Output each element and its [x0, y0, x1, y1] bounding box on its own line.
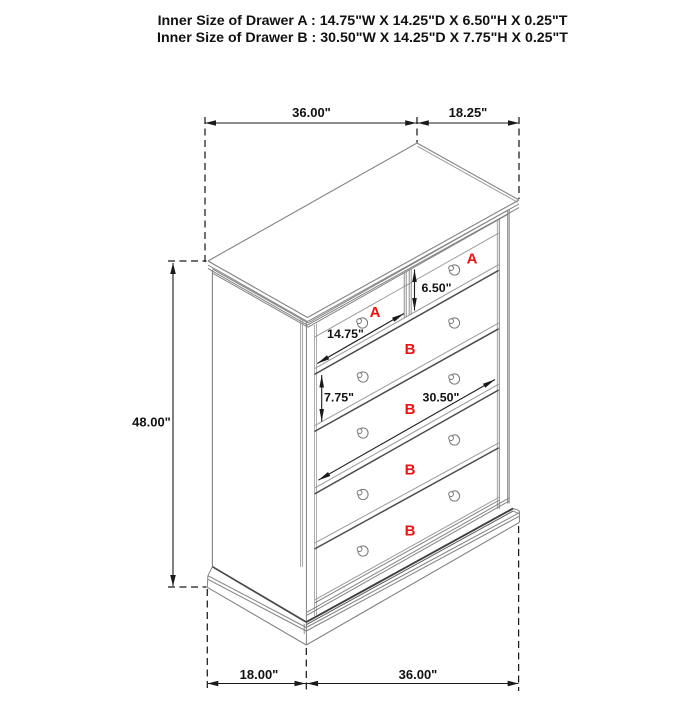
svg-text:48.00": 48.00"	[132, 415, 171, 430]
svg-text:6.50": 6.50"	[422, 281, 452, 295]
svg-text:Inner Size of Drawer B : 30.50: Inner Size of Drawer B : 30.50"W X 14.25…	[157, 30, 568, 46]
svg-text:A: A	[467, 251, 478, 268]
svg-text:Inner Size of Drawer A : 14.75: Inner Size of Drawer A : 14.75"W X 14.25…	[158, 13, 568, 29]
svg-text:B: B	[405, 401, 416, 418]
svg-text:7.75": 7.75"	[324, 391, 354, 405]
svg-text:B: B	[405, 462, 416, 479]
svg-text:30.50": 30.50"	[423, 391, 460, 405]
svg-text:B: B	[405, 341, 416, 358]
svg-text:36.00": 36.00"	[292, 105, 331, 120]
svg-text:B: B	[405, 523, 416, 540]
svg-text:18.00": 18.00"	[240, 667, 279, 682]
svg-text:36.00": 36.00"	[399, 667, 438, 682]
svg-text:18.25": 18.25"	[449, 105, 488, 120]
svg-text:A: A	[370, 304, 381, 321]
svg-text:14.75": 14.75"	[327, 327, 364, 341]
